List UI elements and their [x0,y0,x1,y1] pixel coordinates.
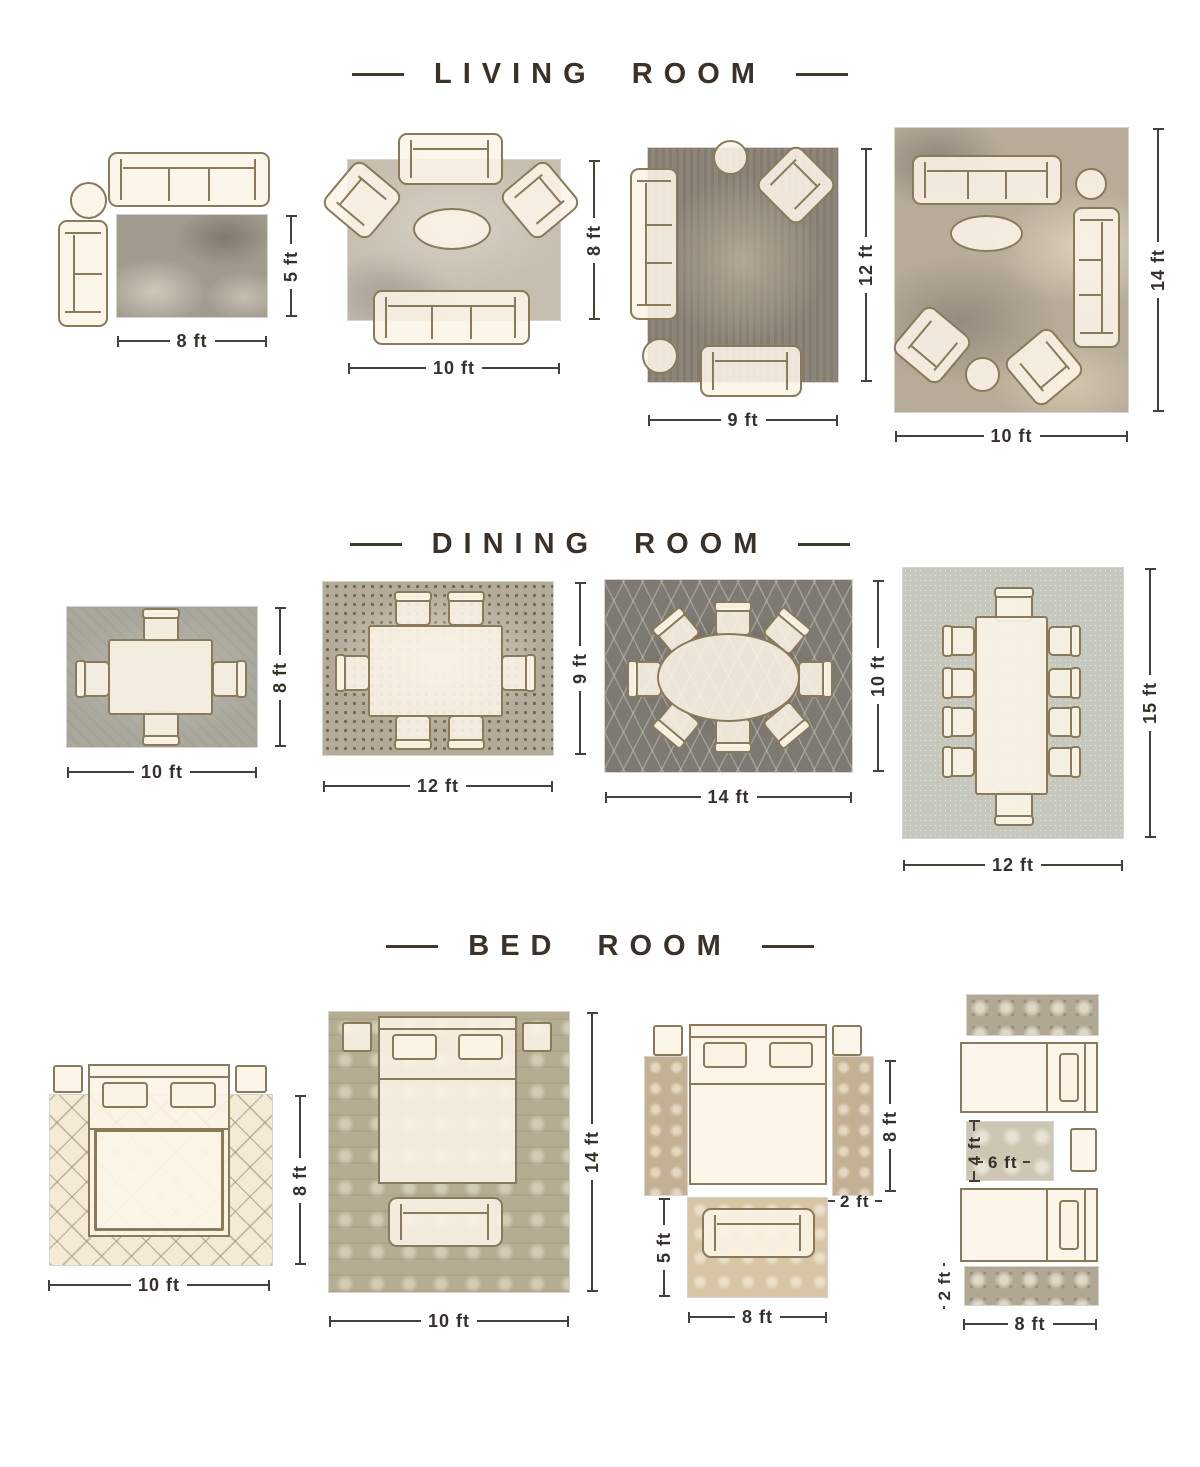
dim-tick [1126,431,1128,442]
dimension-label: 8 ft [170,332,215,350]
dim-line [190,771,255,773]
dim-tick [659,1295,670,1297]
width-dimension: 10 ft [48,1274,270,1296]
dim-line [350,367,426,369]
rug-width-dimension: 8 ft [688,1306,827,1328]
width-dimension: 10 ft [348,357,560,379]
layout-dining-14x10: 14 ft 10 ft [598,568,898,813]
height-dimension: 5 ft [279,215,303,317]
loveseat [58,220,108,327]
bed [88,1064,230,1237]
runner-rug [965,1267,1098,1305]
sofa [108,152,270,207]
bed-height-dimension: 8 ft [878,1060,902,1192]
layout-bed-10x14: 10 ft 14 ft [318,992,623,1332]
dim-line [973,1122,975,1131]
dim-line [976,1161,983,1163]
dim-tick [255,767,257,778]
dim-tick [575,753,586,755]
width-dimension: 12 ft [903,854,1123,876]
dim-line [650,419,721,421]
pillow [458,1034,503,1060]
nightstand [235,1065,267,1093]
dining-table [108,639,213,715]
sofa [630,168,678,320]
nightstand [653,1025,683,1056]
rug-width-dimension: 6 ft [976,1151,1054,1173]
dim-line [579,691,581,753]
dim-line [299,1097,301,1158]
dimension-label: 10 ft [426,359,482,377]
dim-tick [268,1280,270,1291]
dining-chair [947,668,975,698]
dining-chair [448,715,484,745]
pillow [1059,1200,1079,1250]
dim-tick [873,770,884,772]
round-side-table [1075,168,1107,200]
dimension-label: 12 ft [410,777,466,795]
dining-chair [1048,626,1076,656]
dining-chair [80,661,110,697]
width-dimension: 10 ft [895,425,1128,447]
dimension-label: 10 ft [984,427,1040,445]
title-dash [350,543,402,546]
dimension-label: 10 ft [869,648,887,704]
height-dimension: 8 ft [268,607,292,747]
dim-line [325,785,410,787]
dimension-label: 2 ft [936,1266,953,1306]
dim-line [973,1171,975,1180]
dining-chair [1048,747,1076,777]
sofa [1073,207,1120,348]
dining-chair [1048,707,1076,737]
height-dimension: 8 ft [582,160,606,320]
dining-chair [395,715,431,745]
pillow [392,1034,437,1060]
dimension-label: 14 ft [701,788,757,806]
dining-chair [501,655,531,691]
title-dash [798,543,850,546]
nightstand [1070,1128,1097,1172]
nightstand [522,1022,552,1052]
round-side-table [713,140,748,175]
dining-chair [715,718,751,748]
dining-chair [395,596,431,626]
dim-tick [1153,410,1164,412]
sofa [912,155,1062,205]
dimension-label: 12 ft [857,237,875,293]
layout-living-8x5: 8 ft 5 ft [45,138,310,358]
dining-chair [340,655,370,691]
dim-line [591,1180,593,1290]
dining-chair [143,711,179,741]
rug-size-guide: LIVING ROOM 8 ft 5 ft 10 ft 8 ft [0,0,1200,1467]
loveseat [398,133,503,185]
dimension-label: 6 ft [983,1154,1023,1171]
dim-line [690,1316,735,1318]
width-dimension: 12 ft [323,775,553,797]
dim-line [875,1200,882,1202]
height-dimension: 9 ft [568,582,592,755]
layout-bed-side-runners: 8 ft 2 ft 5 ft 8 ft [630,1018,905,1328]
width-dimension: 9 ft [648,409,838,431]
height-dimension: 8 ft [288,1095,312,1265]
dimension-label: 8 ft [881,1104,899,1149]
dim-tick [567,1316,569,1327]
dim-tick [969,1180,980,1182]
section-title-text: BED ROOM [468,930,732,963]
section-title-bed-room: BED ROOM [0,930,1200,963]
width-dimension: 10 ft [67,761,257,783]
blanket [94,1129,224,1231]
dimension-label: 5 ft [655,1225,673,1270]
width-dimension: 14 ft [605,786,852,808]
dim-line [1157,298,1159,410]
layout-twin-beds-runners: 4 ft 6 ft 2 ft 8 ft [928,983,1193,1345]
dim-line [828,1200,835,1202]
dim-line [119,340,170,342]
dining-chair [212,661,242,697]
dim-tick [589,318,600,320]
bed [378,1016,517,1184]
dim-line [1040,435,1127,437]
runner-width-dimension: 8 ft [963,1313,1097,1335]
layout-living-10x14: 10 ft 14 ft [888,112,1193,457]
title-dash [352,73,404,76]
dim-line [331,1320,421,1322]
dimension-label: 14 ft [1149,242,1167,298]
dimension-label: 9 ft [721,411,766,429]
dim-line [290,289,292,316]
dimension-label: 5 ft [282,244,300,289]
section-title-living-room: LIVING ROOM [0,58,1200,91]
nightstand [53,1065,83,1093]
dim-tick [885,1190,896,1192]
dining-table [368,625,503,717]
twin-bed [960,1042,1098,1113]
layout-living-10x8: 10 ft 8 ft [330,118,630,383]
dim-line [766,419,837,421]
dim-tick [836,415,838,426]
pillow [703,1042,747,1068]
dim-line [299,1203,301,1264]
layout-living-9x12: 9 ft 12 ft [628,133,883,428]
height-dimension: 10 ft [866,580,890,772]
dim-line [593,263,595,319]
dimension-label: 10 ft [421,1312,477,1330]
dim-tick [861,380,872,382]
dining-chair [947,747,975,777]
height-dimension: 12 ft [854,148,878,382]
dim-line [943,1306,945,1309]
dining-chair [995,791,1033,821]
oval-dining-table [657,633,800,722]
dim-line [780,1316,825,1318]
dim-line [897,435,984,437]
layout-dining-12x9: 12 ft 9 ft [318,572,613,807]
bench [388,1197,503,1247]
dim-line [1053,1323,1096,1325]
dim-line [279,609,281,655]
dim-line [965,1323,1008,1325]
dimension-label: 15 ft [1141,675,1159,731]
dimension-label: 2 ft [835,1193,875,1210]
runner-rug [833,1057,873,1195]
dimension-label: 8 ft [1008,1315,1053,1333]
dim-line [663,1200,665,1225]
dim-line [477,1320,567,1322]
dim-line [663,1270,665,1295]
height-dimension: 15 ft [1138,568,1162,838]
dining-table [975,616,1048,795]
dining-chair [947,707,975,737]
dim-line [905,864,985,866]
sofa [373,290,530,345]
dimension-label: 8 ft [271,655,289,700]
dim-line [279,700,281,746]
dimension-label: 12 ft [985,856,1041,874]
dim-line [187,1284,268,1286]
oval-coffee-table [413,208,491,250]
dimension-label: 8 ft [291,1158,309,1203]
dim-line [877,582,879,648]
dim-line [757,796,851,798]
round-side-table [965,357,1000,392]
dim-line [1023,1161,1030,1163]
twin-bed [960,1188,1098,1262]
round-side-table [70,182,107,219]
dim-tick [1095,1319,1097,1330]
height-dimension: 14 ft [1146,128,1170,412]
dim-tick [558,363,560,374]
dim-tick [275,745,286,747]
runner-height-dimension: 2 ft [932,1263,956,1309]
layout-bed-10x8: 10 ft 8 ft [38,1048,333,1298]
title-dash [796,73,848,76]
runner-rug [645,1057,687,1195]
height-dimension: 14 ft [580,1012,604,1292]
dim-line [1157,130,1159,242]
dim-tick [286,315,297,317]
rug-height-dimension: 5 ft [652,1198,676,1297]
dining-chair [947,626,975,656]
dining-chair [448,596,484,626]
section-title-text: LIVING ROOM [434,58,766,91]
dim-tick [265,336,267,347]
width-dimension: 8 ft [117,330,267,352]
layout-dining-12x15: 12 ft 15 ft [898,562,1178,877]
loveseat [702,1208,815,1258]
nightstand [832,1025,862,1056]
dimension-label: 10 ft [134,763,190,781]
dim-tick [295,1263,306,1265]
dim-line [69,771,134,773]
bed [689,1024,827,1185]
dim-line [482,367,558,369]
dim-line [215,340,266,342]
loveseat [700,345,802,397]
dim-line [889,1149,891,1191]
title-dash [386,945,438,948]
dim-tick [587,1290,598,1292]
dimension-label: 10 ft [131,1276,187,1294]
dim-line [591,1014,593,1124]
dim-tick [850,792,852,803]
dim-line [593,162,595,218]
dim-line [1149,731,1151,836]
rug [117,215,267,317]
dim-tick [1145,836,1156,838]
section-title-text: DINING ROOM [432,528,769,561]
dim-tick [825,1312,827,1323]
dim-line [877,704,879,770]
pillow [102,1082,148,1108]
dim-line [579,584,581,646]
dim-line [50,1284,131,1286]
pillow [769,1042,813,1068]
dim-tick [1121,860,1123,871]
dim-line [865,293,867,380]
dim-line [466,785,551,787]
dining-chair [715,606,751,636]
dim-line [865,150,867,237]
dimension-label: 8 ft [585,218,603,263]
oval-coffee-table [950,215,1023,252]
dimension-label: 8 ft [735,1308,780,1326]
dining-chair [798,661,828,697]
dining-chair [1048,668,1076,698]
width-dimension: 10 ft [329,1310,569,1332]
pillow [1059,1053,1079,1101]
layout-dining-10x8: 10 ft 8 ft [50,588,320,788]
dimension-label: 14 ft [583,1124,601,1180]
dim-tick [551,781,553,792]
title-dash [762,945,814,948]
runner-rug [967,995,1098,1035]
nightstand [342,1022,372,1052]
pillow [170,1082,216,1108]
dim-line [607,796,701,798]
dimension-label: 9 ft [571,646,589,691]
round-side-table [642,338,678,374]
section-title-dining-room: DINING ROOM [0,528,1200,561]
dim-line [1149,570,1151,675]
runner-width-dimension: 2 ft [828,1190,886,1212]
dim-line [290,217,292,244]
dim-line [889,1062,891,1104]
dim-line [1041,864,1121,866]
